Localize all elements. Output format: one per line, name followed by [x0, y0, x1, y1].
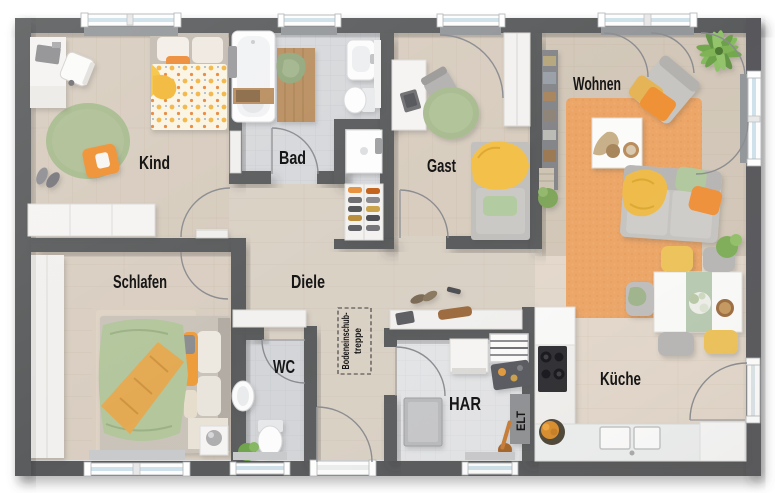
svg-text:Gast: Gast — [427, 156, 456, 176]
svg-text:WC: WC — [273, 357, 295, 377]
svg-text:Küche: Küche — [600, 369, 641, 389]
svg-text:Bodeneinschub-: Bodeneinschub- — [341, 313, 352, 370]
svg-text:Bad: Bad — [279, 148, 306, 168]
svg-text:Diele: Diele — [291, 272, 325, 292]
svg-text:Wohnen: Wohnen — [573, 74, 621, 94]
svg-text:Schlafen: Schlafen — [113, 272, 167, 292]
svg-text:HAR: HAR — [449, 394, 481, 414]
svg-text:Kind: Kind — [139, 153, 170, 173]
svg-text:ELT: ELT — [516, 411, 528, 431]
svg-text:treppe: treppe — [353, 328, 364, 354]
